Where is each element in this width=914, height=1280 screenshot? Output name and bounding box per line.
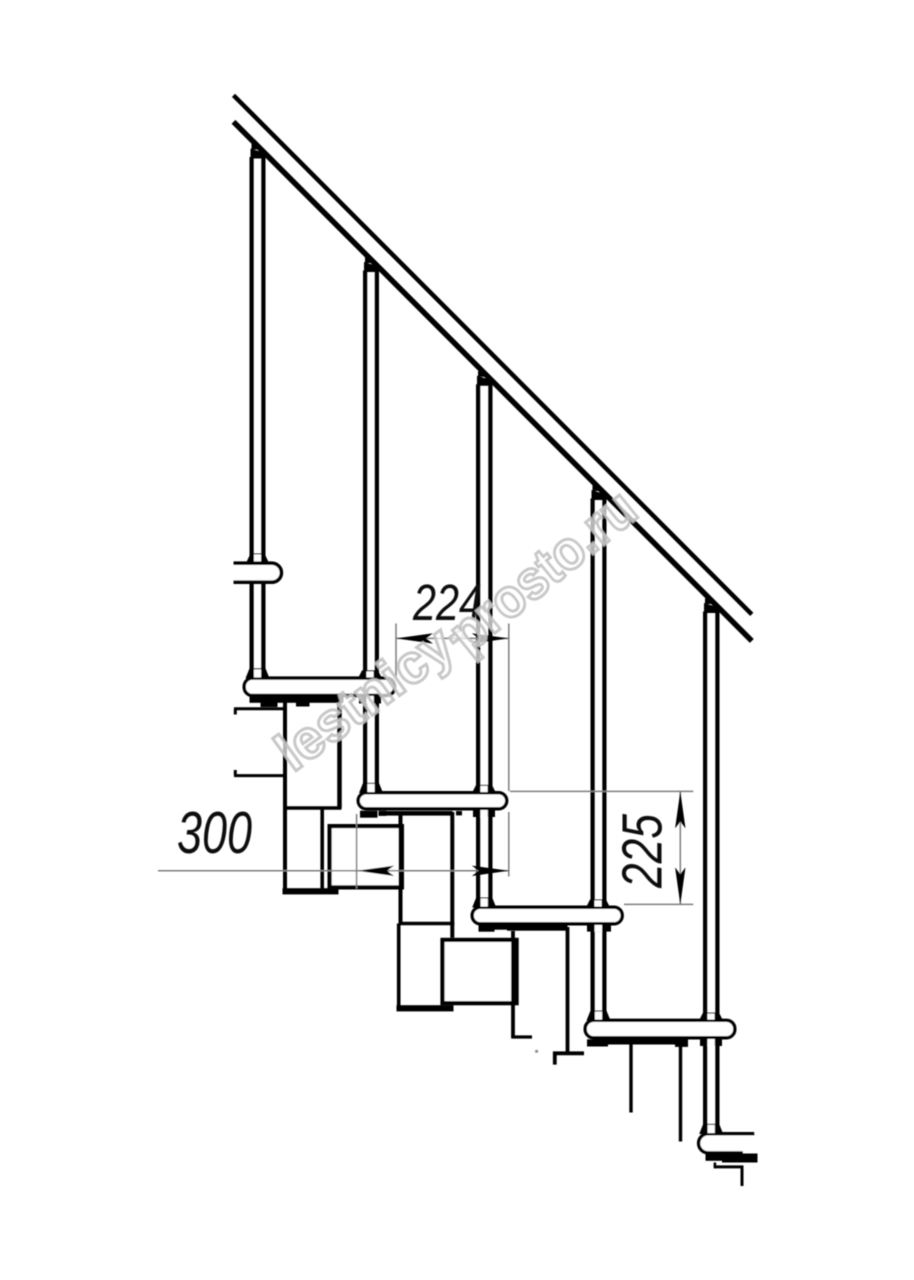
svg-text:225: 225 <box>611 814 675 889</box>
svg-text:300: 300 <box>177 800 252 866</box>
